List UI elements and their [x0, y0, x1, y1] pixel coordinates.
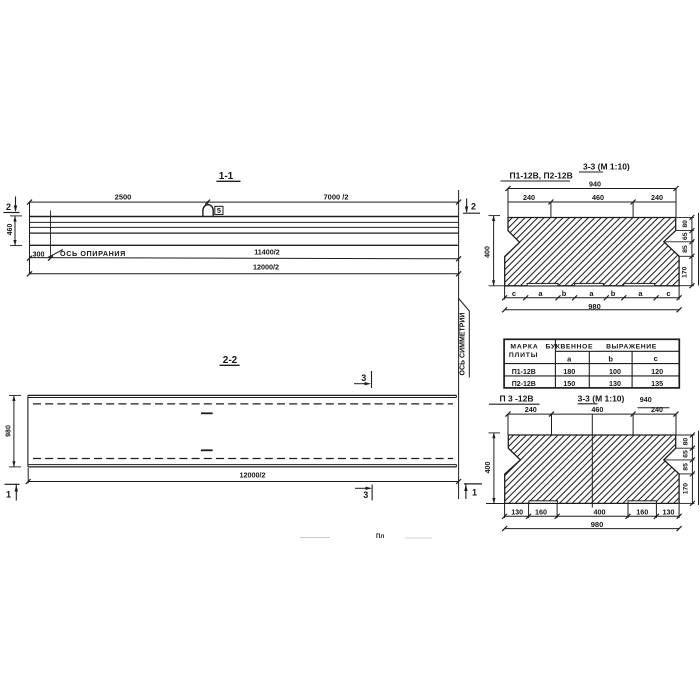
- svg-text:160: 160: [636, 508, 648, 517]
- svg-text:135: 135: [651, 379, 663, 388]
- svg-text:980: 980: [6, 425, 13, 437]
- svg-text:400: 400: [594, 508, 606, 517]
- svg-text:П1-12В: П1-12В: [512, 369, 536, 376]
- svg-text:400: 400: [485, 462, 492, 474]
- svg-text:240: 240: [651, 405, 663, 414]
- svg-text:180: 180: [563, 367, 575, 376]
- svg-text:c: c: [666, 289, 670, 298]
- svg-text:130: 130: [609, 379, 621, 388]
- svg-text:3: 3: [363, 490, 368, 500]
- svg-text:П1-12В, П2-12В: П1-12В, П2-12В: [510, 171, 573, 181]
- svg-text:170: 170: [682, 266, 689, 278]
- svg-text:7000 /2: 7000 /2: [323, 193, 348, 202]
- svg-text:ОСЬ СИММЕТРИИ: ОСЬ СИММЕТРИИ: [460, 313, 467, 376]
- svg-text:11400/2: 11400/2: [254, 247, 280, 256]
- svg-text:150: 150: [563, 379, 575, 388]
- svg-text:65: 65: [682, 232, 689, 240]
- svg-text:85: 85: [682, 245, 689, 253]
- svg-text:400: 400: [485, 246, 492, 258]
- svg-text:80: 80: [683, 438, 690, 446]
- svg-text:980: 980: [588, 302, 601, 311]
- svg-text:2: 2: [471, 202, 476, 212]
- svg-text:240: 240: [651, 193, 663, 202]
- svg-text:940: 940: [640, 395, 652, 404]
- svg-text:120: 120: [651, 367, 663, 376]
- svg-text:П2-12В: П2-12В: [512, 381, 536, 388]
- svg-text:1-1: 1-1: [219, 171, 234, 182]
- svg-text:Пл: Пл: [376, 534, 384, 540]
- svg-text:460: 460: [592, 193, 604, 202]
- svg-text:130: 130: [663, 508, 675, 517]
- svg-text:МАРКА: МАРКА: [510, 344, 538, 351]
- svg-text:2: 2: [6, 202, 11, 212]
- svg-text:БУКВЕННОЕ: БУКВЕННОЕ: [546, 344, 594, 351]
- svg-text:b: b: [562, 289, 567, 298]
- svg-text:170: 170: [683, 483, 690, 495]
- svg-text:240: 240: [525, 405, 537, 414]
- svg-text:460: 460: [7, 224, 14, 236]
- svg-text:12000/2: 12000/2: [240, 470, 266, 479]
- svg-text:ВЫРАЖЕНИЕ: ВЫРАЖЕНИЕ: [606, 344, 657, 351]
- svg-text:460: 460: [591, 405, 603, 414]
- svg-text:80: 80: [682, 220, 689, 228]
- svg-text:c: c: [512, 289, 516, 298]
- svg-text:3-3 (М 1:10): 3-3 (М 1:10): [578, 394, 625, 404]
- svg-text:П 3 -12В: П 3 -12В: [500, 394, 534, 404]
- svg-text:5: 5: [217, 206, 221, 215]
- svg-text:65: 65: [683, 450, 690, 458]
- svg-text:3-3 (М 1:10): 3-3 (М 1:10): [583, 162, 630, 172]
- svg-text:240: 240: [523, 193, 535, 202]
- svg-text:b: b: [608, 355, 613, 364]
- svg-text:130: 130: [511, 508, 523, 517]
- svg-text:b: b: [611, 289, 616, 298]
- svg-text:1: 1: [6, 490, 11, 500]
- svg-text:100: 100: [609, 367, 621, 376]
- svg-text:940: 940: [589, 179, 601, 188]
- svg-text:ПЛИТЫ: ПЛИТЫ: [509, 352, 538, 359]
- svg-text:1: 1: [472, 488, 477, 498]
- svg-text:980: 980: [591, 520, 604, 529]
- svg-text:ОСЬ ОПИРАНИЯ: ОСЬ ОПИРАНИЯ: [60, 249, 126, 258]
- svg-text:2500: 2500: [115, 193, 132, 202]
- svg-text:c: c: [654, 354, 658, 363]
- svg-text:12000/2: 12000/2: [253, 263, 279, 272]
- svg-text:160: 160: [535, 508, 547, 517]
- svg-text:2-2: 2-2: [223, 355, 238, 366]
- svg-text:85: 85: [683, 463, 690, 471]
- svg-text:3: 3: [361, 373, 366, 383]
